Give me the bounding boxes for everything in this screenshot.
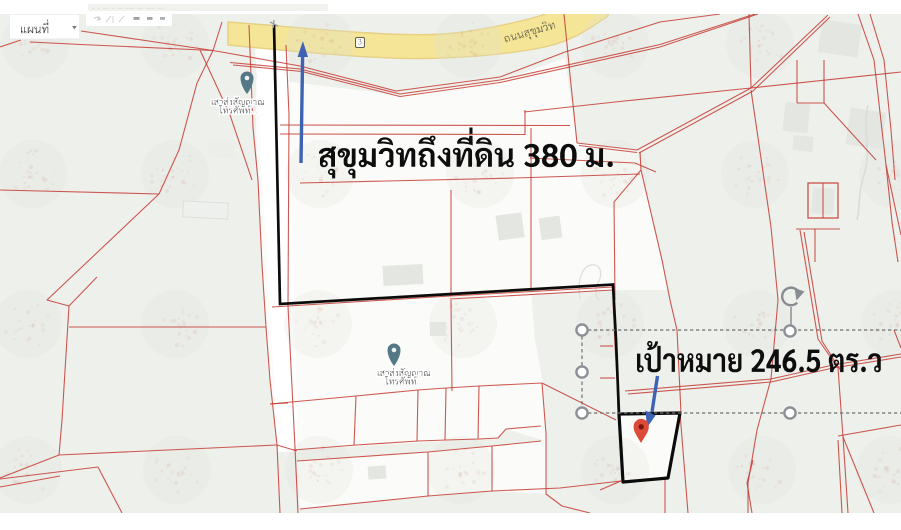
svg-text:- - -- - -- --- -- --- --: - - -- - -- --- -- --- -- [92, 3, 163, 13]
